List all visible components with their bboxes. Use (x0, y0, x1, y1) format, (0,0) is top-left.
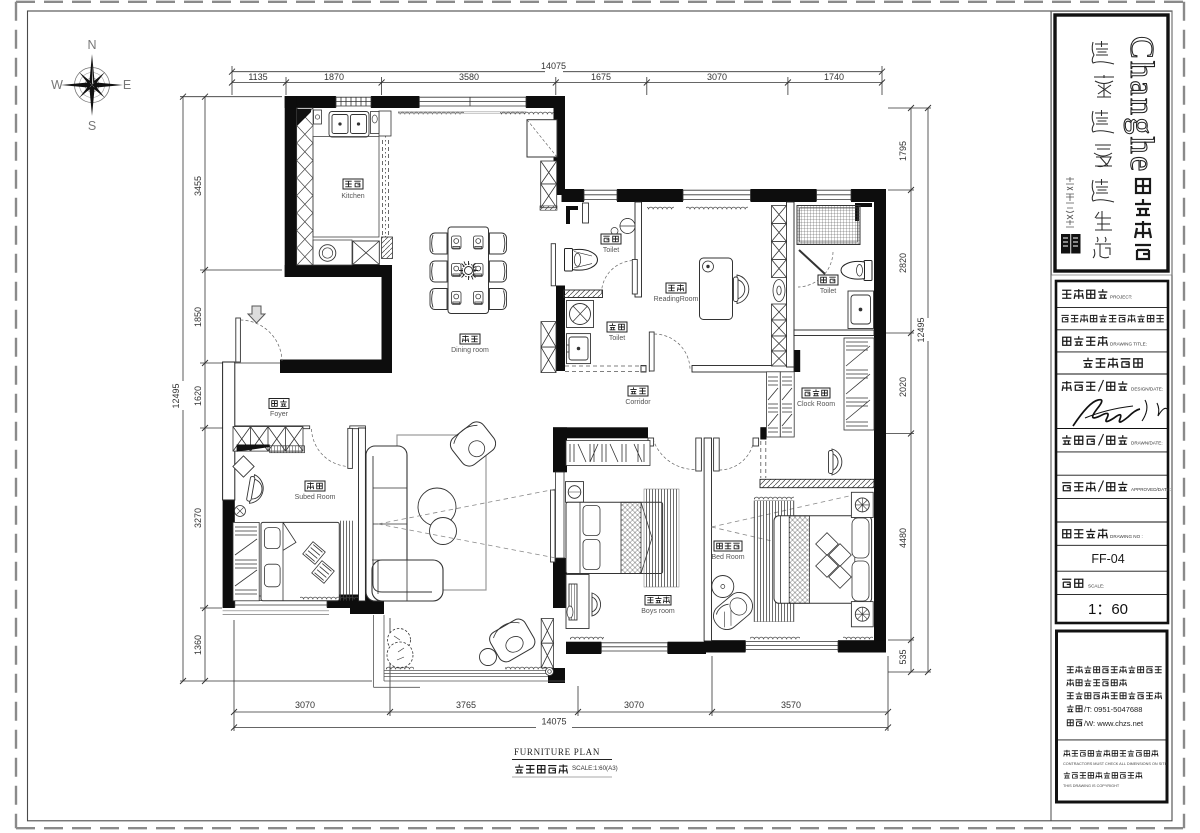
svg-text:3455: 3455 (193, 176, 203, 196)
svg-text:/T: 0951-5047688: /T: 0951-5047688 (1084, 705, 1142, 714)
svg-text:1795: 1795 (898, 141, 908, 161)
svg-text:PROJECT:: PROJECT: (1110, 295, 1132, 300)
svg-text:1850: 1850 (193, 307, 203, 327)
svg-text:3270: 3270 (193, 508, 203, 528)
svg-text:12495: 12495 (916, 317, 926, 342)
svg-text:Changhe: Changhe (1123, 36, 1160, 174)
svg-text:CONTRACTORS MUST CHECK ALL DIM: CONTRACTORS MUST CHECK ALL DIMENSIONS ON… (1063, 762, 1168, 766)
svg-text:1360: 1360 (193, 635, 203, 655)
svg-text:SCALE:1:60(A3): SCALE:1:60(A3) (572, 765, 618, 772)
svg-text:Toilet: Toilet (603, 247, 619, 254)
svg-text:SCALE:: SCALE: (1088, 584, 1104, 589)
svg-text:/W: www.chzs.net: /W: www.chzs.net (1084, 719, 1144, 728)
svg-text:4480: 4480 (898, 528, 908, 548)
svg-text:Foyer: Foyer (270, 411, 289, 418)
svg-text:3070: 3070 (295, 700, 315, 710)
svg-text:3765: 3765 (456, 700, 476, 710)
svg-text:14075: 14075 (541, 717, 566, 727)
svg-text:14075: 14075 (541, 61, 566, 71)
svg-text:3070: 3070 (624, 700, 644, 710)
svg-text:DRAWING TITLE:: DRAWING TITLE: (1110, 342, 1147, 347)
svg-text:FURNITURE PLAN: FURNITURE PLAN (514, 747, 600, 757)
svg-text:S: S (88, 119, 96, 133)
svg-text:Toilet: Toilet (820, 288, 836, 295)
svg-text:Boys room: Boys room (641, 608, 675, 615)
svg-text:12495: 12495 (171, 383, 181, 408)
svg-text:3580: 3580 (459, 72, 479, 82)
svg-text:3070: 3070 (707, 72, 727, 82)
svg-text:Corridor: Corridor (625, 399, 651, 406)
svg-text:APPROVED/DATE:: APPROVED/DATE: (1131, 487, 1171, 492)
svg-text:3570: 3570 (781, 700, 801, 710)
svg-text:Subed Room: Subed Room (295, 494, 336, 501)
svg-text:535: 535 (898, 649, 908, 664)
svg-text:Toilet: Toilet (609, 335, 625, 342)
svg-text:1675: 1675 (591, 72, 611, 82)
svg-text:1870: 1870 (324, 72, 344, 82)
svg-text:DRAWN/DATE:: DRAWN/DATE: (1131, 441, 1163, 446)
svg-text:Clock Room: Clock Room (797, 401, 835, 408)
svg-text:2020: 2020 (898, 377, 908, 397)
svg-text:DESIGN/DATE:: DESIGN/DATE: (1131, 387, 1163, 392)
svg-text:ReadingRoom: ReadingRoom (654, 296, 699, 303)
svg-text:1135: 1135 (248, 72, 267, 82)
svg-text:N: N (87, 38, 96, 52)
svg-text:1620: 1620 (193, 386, 203, 406)
svg-text:Dining room: Dining room (451, 347, 489, 354)
svg-text:Bed Room: Bed Room (711, 554, 744, 561)
svg-text:2820: 2820 (898, 253, 908, 273)
svg-text:E: E (123, 78, 131, 92)
svg-text:1：60: 1：60 (1088, 601, 1128, 618)
svg-text:THIS DRAWING IS COPYRIGHT: THIS DRAWING IS COPYRIGHT (1063, 784, 1120, 788)
svg-text:DRAWING NO :: DRAWING NO : (1110, 534, 1143, 539)
svg-text:Kitchen: Kitchen (341, 193, 364, 200)
svg-text:FF-04: FF-04 (1091, 552, 1124, 566)
svg-text:W: W (51, 78, 63, 92)
svg-text:1740: 1740 (824, 72, 844, 82)
